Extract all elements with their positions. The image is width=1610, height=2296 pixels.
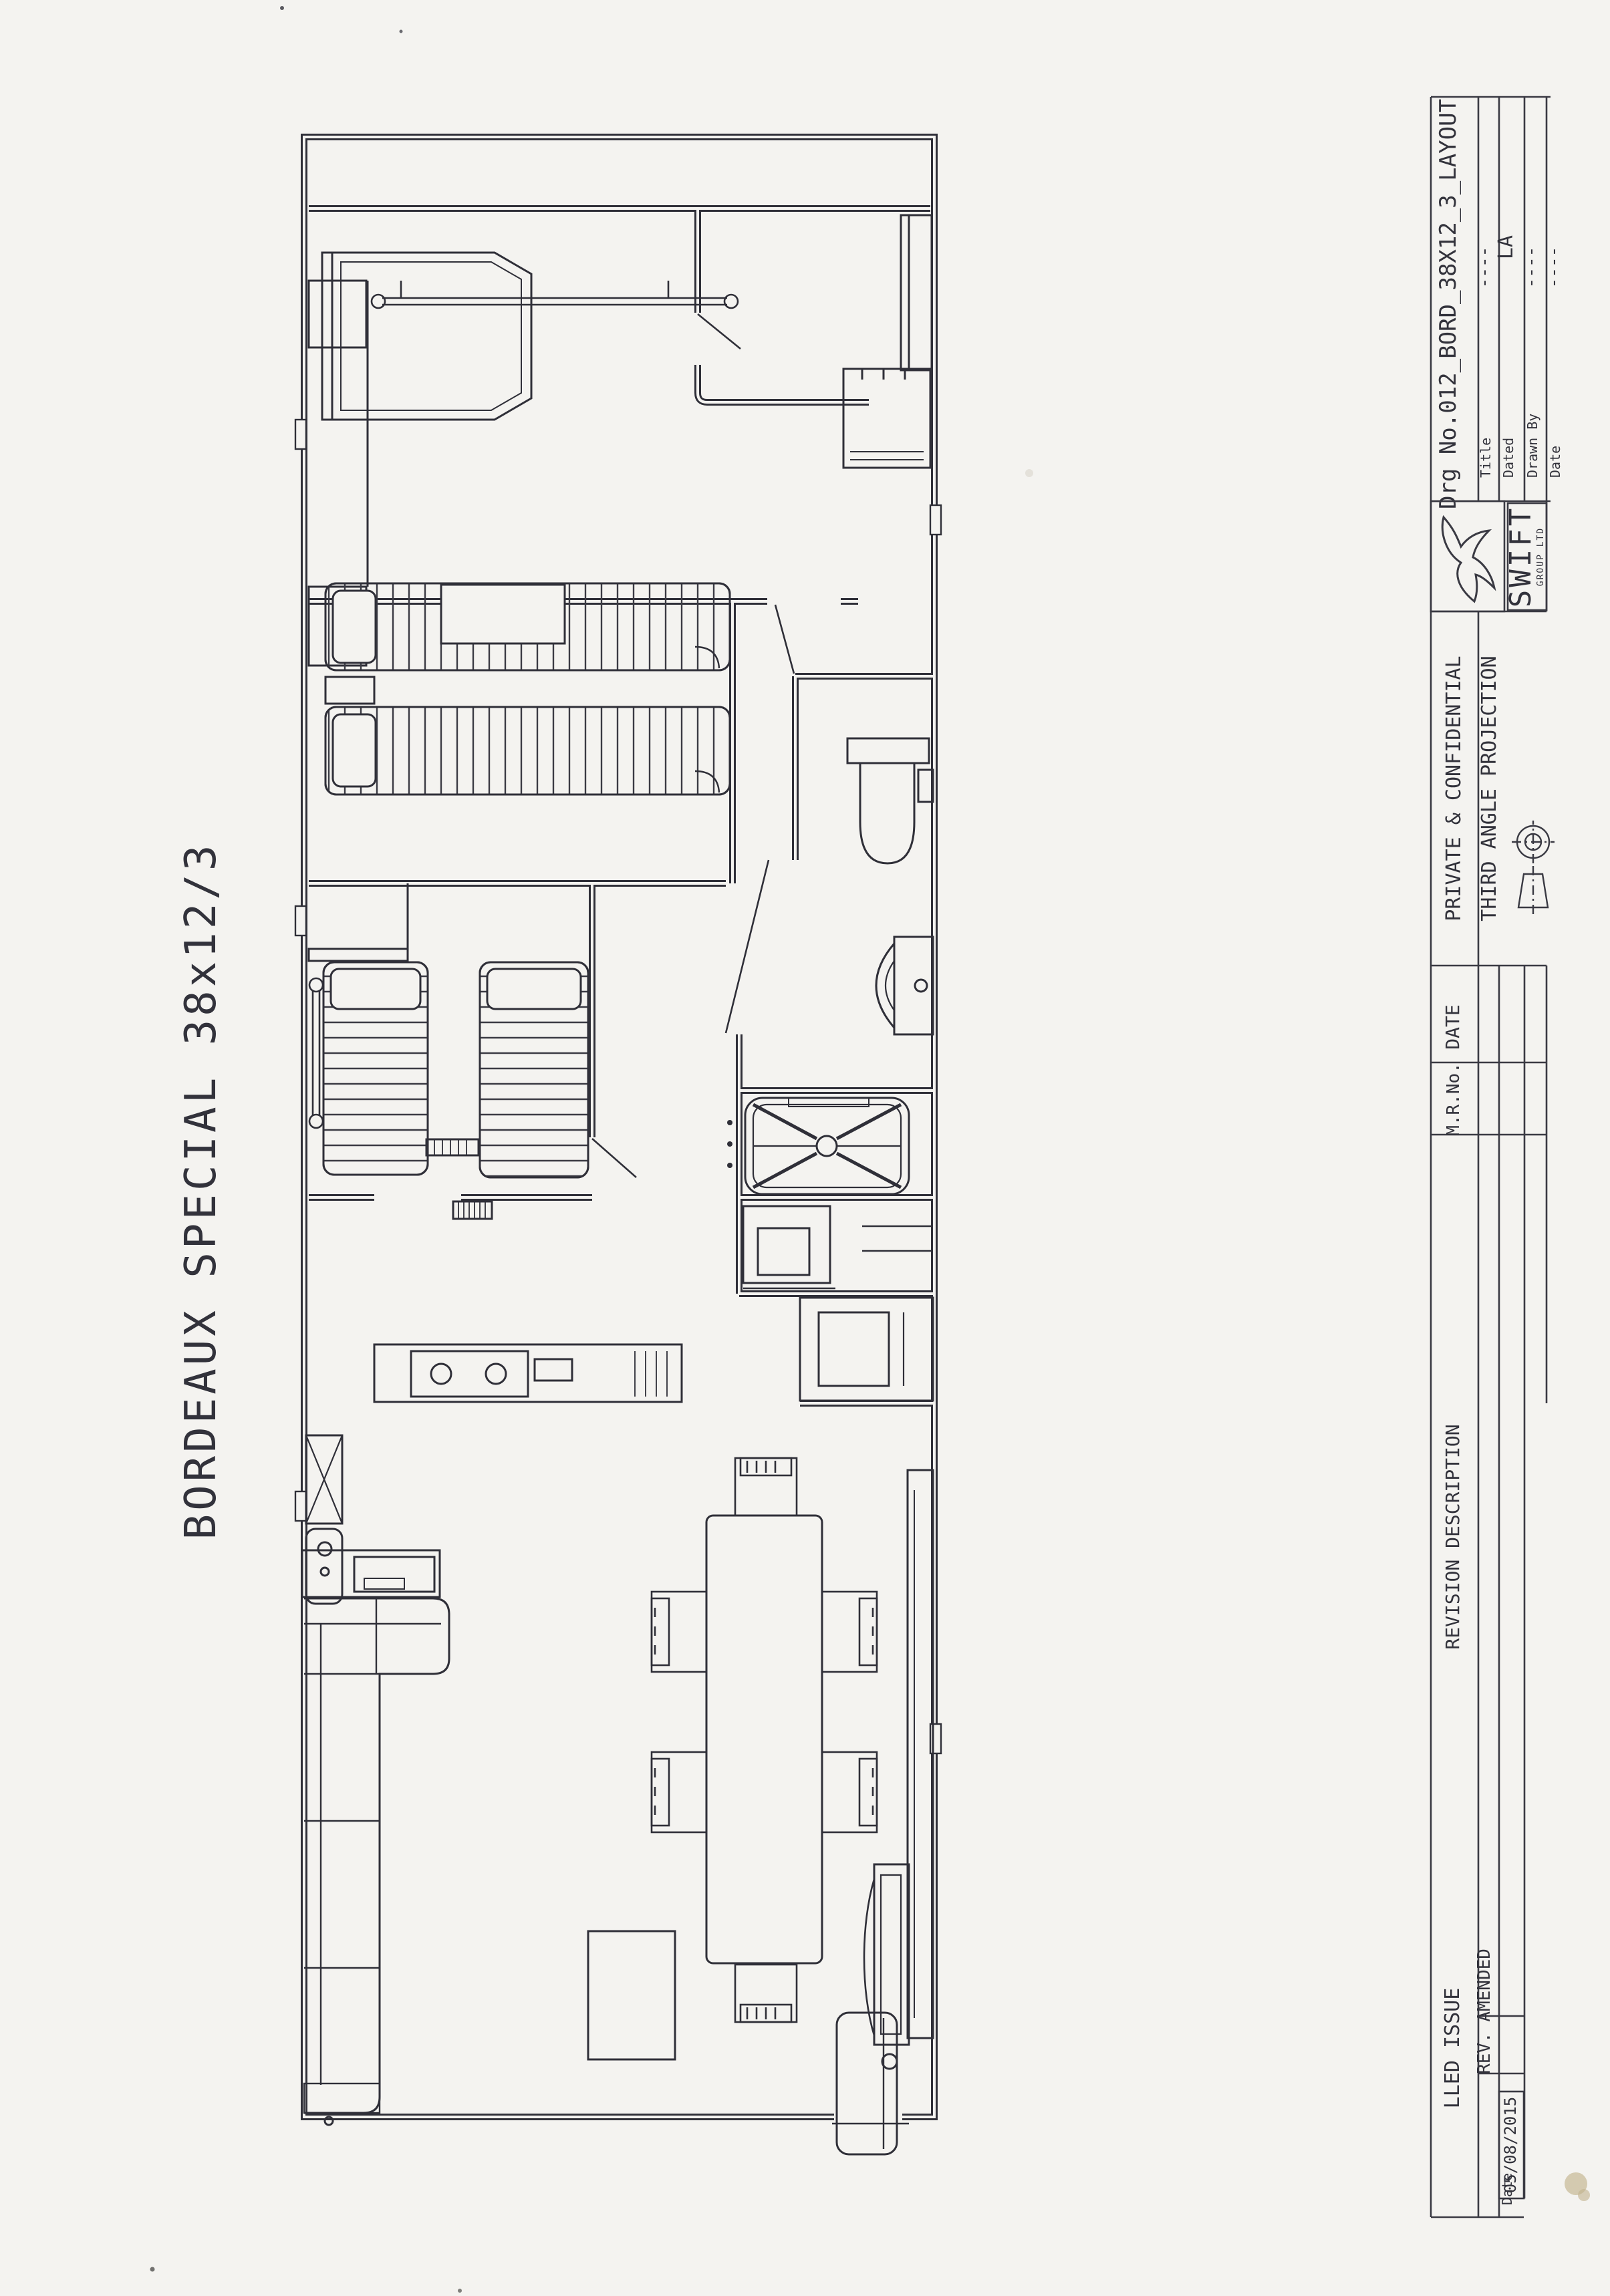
single-bed — [325, 707, 730, 795]
col-header-mrno: M.R.No. — [1444, 1062, 1464, 1136]
drawing-title-text: BORDEAUX SPECIAL 38x12/3 — [176, 842, 226, 1540]
double-bed — [322, 253, 531, 420]
hob — [411, 1351, 528, 1397]
child-bed — [480, 962, 588, 1177]
issue-date-box: 05/08/2015 Date — [1499, 2092, 1524, 2205]
company-name: SWIFT — [1504, 506, 1538, 607]
overhead-locker — [441, 585, 565, 643]
vent-dots — [727, 1120, 732, 1168]
kitchen — [302, 1201, 682, 1604]
child-bed — [323, 962, 428, 1175]
third-angle-symbol — [1512, 821, 1555, 914]
projection-note: THIRD ANGLE PROJECTION — [1478, 656, 1501, 921]
field-value: ---- — [1521, 247, 1541, 289]
shower-enclosure — [745, 1098, 909, 1194]
toilet — [847, 738, 929, 863]
rev-entry: REV. AMENDED — [1474, 1949, 1494, 2074]
floor-plan — [295, 137, 941, 2154]
field-value: LA — [1494, 235, 1518, 259]
swift-bird-logo — [1442, 517, 1494, 601]
drg-no: Drg No.012_BORD_38X12_3_LAYOUT — [1435, 99, 1462, 509]
floor-plan-drawing: BORDEAUX SPECIAL 38x12/3 — [0, 0, 1610, 2296]
sideboard — [908, 1470, 933, 2038]
shower-room — [727, 1098, 932, 1288]
revision-table: DATE M.R.No. REVISION DESCRIPTION LLED I… — [1431, 966, 1547, 2217]
field-label: Title — [1478, 438, 1494, 478]
notes: PRIVATE & CONFIDENTIAL THIRD ANGLE PROJE… — [1442, 656, 1501, 921]
logo-panel: SWIFT GROUP LTD — [1431, 501, 1547, 611]
headboard-rail — [372, 281, 738, 308]
second-twin-bedroom — [309, 883, 588, 1177]
toilet-roll-holder — [918, 770, 933, 802]
shelf — [309, 949, 408, 961]
lounge — [304, 1458, 933, 2154]
worktop-oven — [302, 1550, 440, 1597]
wash-basin — [876, 937, 933, 1034]
bathroom-door — [726, 860, 769, 1033]
col-header-date: DATE — [1442, 1004, 1464, 1049]
tall-cupboard — [901, 215, 932, 370]
drawing-title: BORDEAUX SPECIAL 38x12/3 — [176, 842, 226, 1540]
field-label: Dated — [1500, 438, 1516, 478]
entrance-door — [832, 2013, 909, 2154]
bedside-shelf — [325, 677, 374, 704]
twin-bedroom — [325, 583, 730, 795]
airing-cupboard — [800, 1298, 933, 1401]
dining-chairs — [652, 1458, 877, 2022]
drainer — [306, 1435, 342, 1524]
issue-date-label: Date — [1499, 2173, 1515, 2205]
confidentiality-note: PRIVATE & CONFIDENTIAL — [1442, 656, 1466, 921]
bedroom-door — [775, 605, 794, 674]
field-label: Drawn By — [1524, 414, 1540, 478]
field-value: ---- — [1474, 247, 1494, 289]
bathroom — [847, 738, 933, 1034]
step-box — [426, 1139, 479, 1155]
col-header-description: REVISION DESCRIPTION — [1442, 1424, 1464, 1649]
media-unit — [864, 1864, 909, 2045]
corner-sofa — [304, 1598, 449, 2113]
title-block: Drg No.012_BORD_38X12_3_LAYOUT Title ---… — [1431, 97, 1564, 2217]
kitchen-sink — [306, 1529, 342, 1604]
hob-counter — [374, 1344, 682, 1402]
dresser-cabinet — [843, 369, 930, 468]
field-label: Date — [1547, 446, 1563, 478]
company-sub: GROUP LTD — [1536, 527, 1546, 586]
vanity-unit — [743, 1206, 932, 1288]
coffee-table — [588, 1931, 675, 2059]
field-value: ---- — [1544, 247, 1564, 289]
issue-entry: LLED ISSUE — [1441, 1988, 1464, 2109]
bed-guard-rail — [309, 978, 323, 1128]
kids-room-door — [592, 1139, 636, 1177]
scanned-drawing-sheet: BORDEAUX SPECIAL 38x12/3 — [0, 0, 1610, 2296]
dining-table — [706, 1516, 822, 1963]
heater — [453, 1201, 492, 1219]
